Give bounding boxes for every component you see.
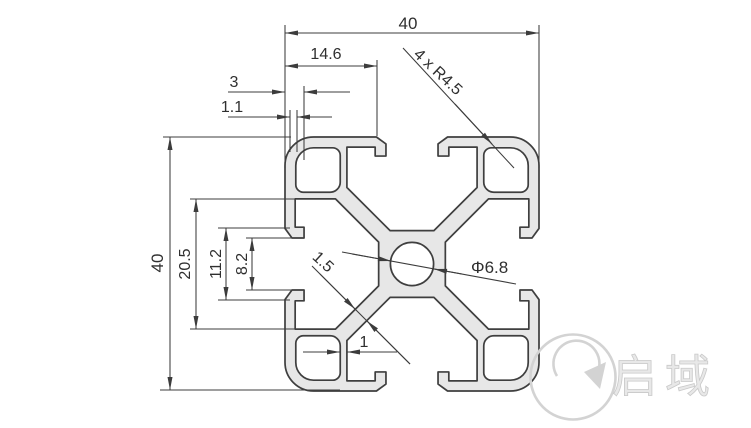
dim-overall-height-label: 40 [148,254,167,273]
technical-drawing-canvas: 40 14.6 3 1.1 4 x R4.5 40 20.5 11.2 8.2 … [0,0,751,428]
dim-hook-depth-label: 3 [230,74,239,91]
dim-lip-tip-label: 1.1 [221,99,243,116]
logo-tail-icon [584,362,606,389]
brand-watermark: 启域 [531,335,719,420]
brand-name: 启域 [612,351,718,402]
dimension-line [320,274,355,309]
dim-center-bore-label: Φ6.8 [471,258,508,277]
logo-circle-icon [531,335,616,420]
dim-web-thickness-label: 1.5 [309,249,337,277]
dimension-line [367,321,410,364]
dim-slot-edge-offset-label: 14.6 [310,46,341,63]
dim-overall-width-label: 40 [399,14,418,33]
extrusion-profile-drawing: 40 14.6 3 1.1 4 x R4.5 40 20.5 11.2 8.2 … [0,0,751,428]
dim-slot-cavity-width-label: 20.5 [177,248,194,279]
dim-corner-radius-label: 4 x R4.5 [410,46,465,99]
dim-slot-outer-opening-label: 11.2 [208,249,225,279]
dim-slot-inner-opening-label: 8.2 [234,253,251,275]
dim-cavity-wall-label: 1 [360,334,369,351]
